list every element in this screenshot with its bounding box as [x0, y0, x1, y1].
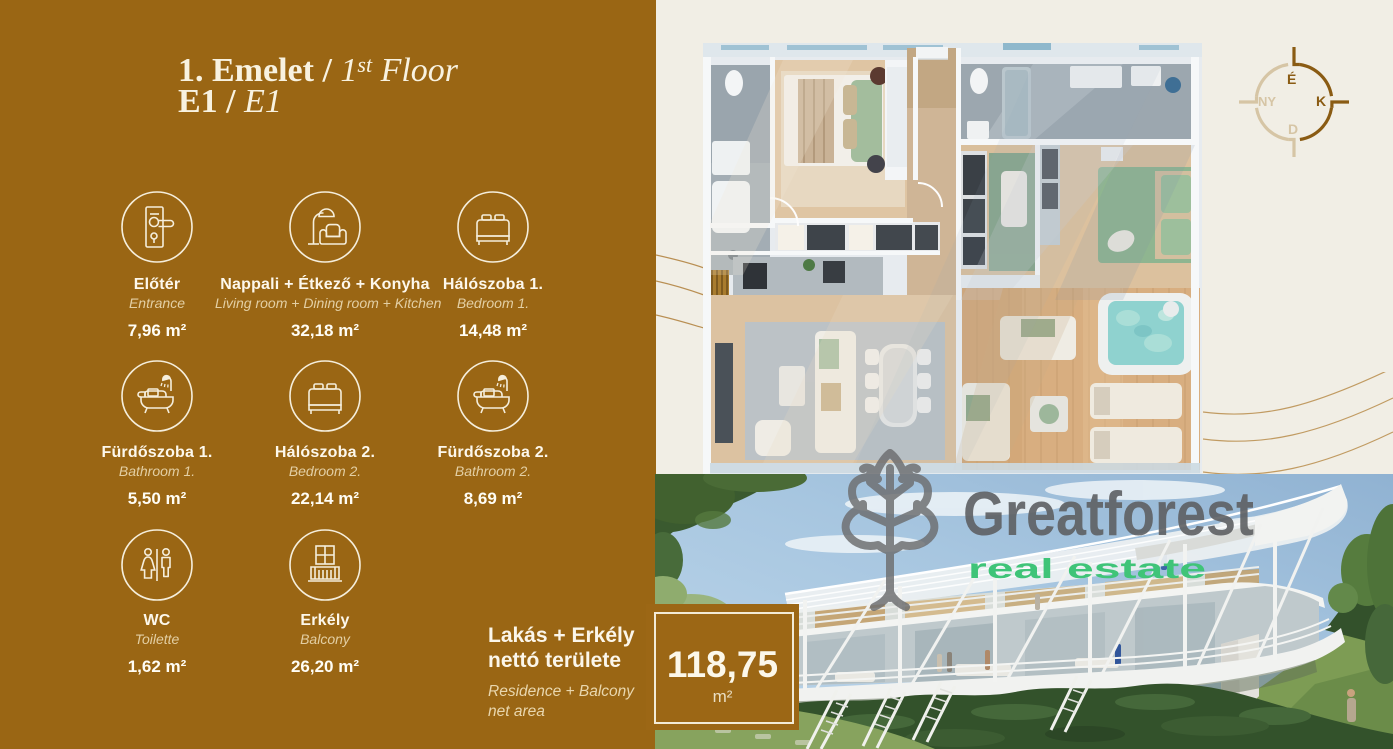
svg-text:É: É	[1287, 71, 1296, 87]
svg-text:NY: NY	[1258, 94, 1276, 109]
svg-text:K: K	[1316, 93, 1326, 109]
svg-text:Greatforest: Greatforest	[963, 480, 1254, 549]
svg-text:D: D	[1288, 121, 1298, 137]
svg-text:real estate: real estate	[968, 553, 1206, 584]
